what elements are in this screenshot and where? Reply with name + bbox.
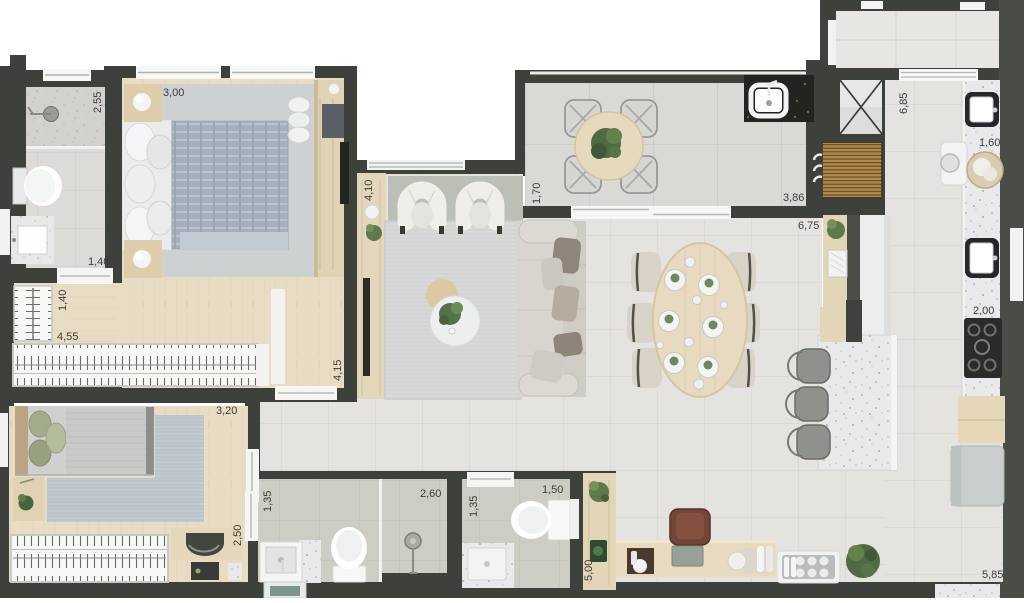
svg-text:3,20: 3,20 bbox=[216, 405, 237, 417]
svg-text:2,00: 2,00 bbox=[973, 305, 994, 317]
svg-text:4,10: 4,10 bbox=[363, 180, 375, 201]
svg-text:1,60: 1,60 bbox=[979, 137, 1000, 149]
svg-text:1,50: 1,50 bbox=[542, 484, 563, 496]
svg-text:2,60: 2,60 bbox=[420, 488, 441, 500]
svg-text:1,35: 1,35 bbox=[468, 496, 480, 517]
svg-text:2,50: 2,50 bbox=[232, 525, 244, 546]
svg-text:1,40: 1,40 bbox=[88, 256, 109, 268]
svg-text:4,55: 4,55 bbox=[57, 331, 78, 343]
svg-text:1,70: 1,70 bbox=[531, 183, 543, 204]
svg-text:4,15: 4,15 bbox=[332, 360, 344, 381]
svg-text:3,86: 3,86 bbox=[783, 192, 804, 204]
svg-text:1,40: 1,40 bbox=[57, 290, 69, 311]
svg-text:6,75: 6,75 bbox=[798, 220, 819, 232]
svg-text:5,85: 5,85 bbox=[982, 569, 1003, 581]
svg-text:5,00: 5,00 bbox=[583, 560, 595, 581]
svg-text:3,00: 3,00 bbox=[163, 87, 184, 99]
svg-text:6,85: 6,85 bbox=[898, 93, 910, 114]
svg-text:1,35: 1,35 bbox=[262, 491, 274, 512]
svg-text:2,55: 2,55 bbox=[92, 92, 104, 113]
